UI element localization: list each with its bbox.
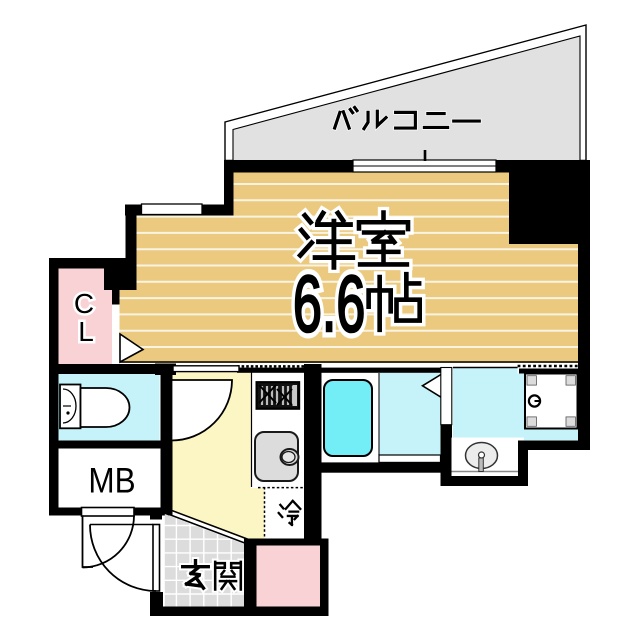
svg-text:MB: MB [88,462,135,501]
svg-text:C: C [74,288,94,319]
svg-text:L: L [78,316,94,347]
svg-text:6.6: 6.6 [293,260,365,349]
